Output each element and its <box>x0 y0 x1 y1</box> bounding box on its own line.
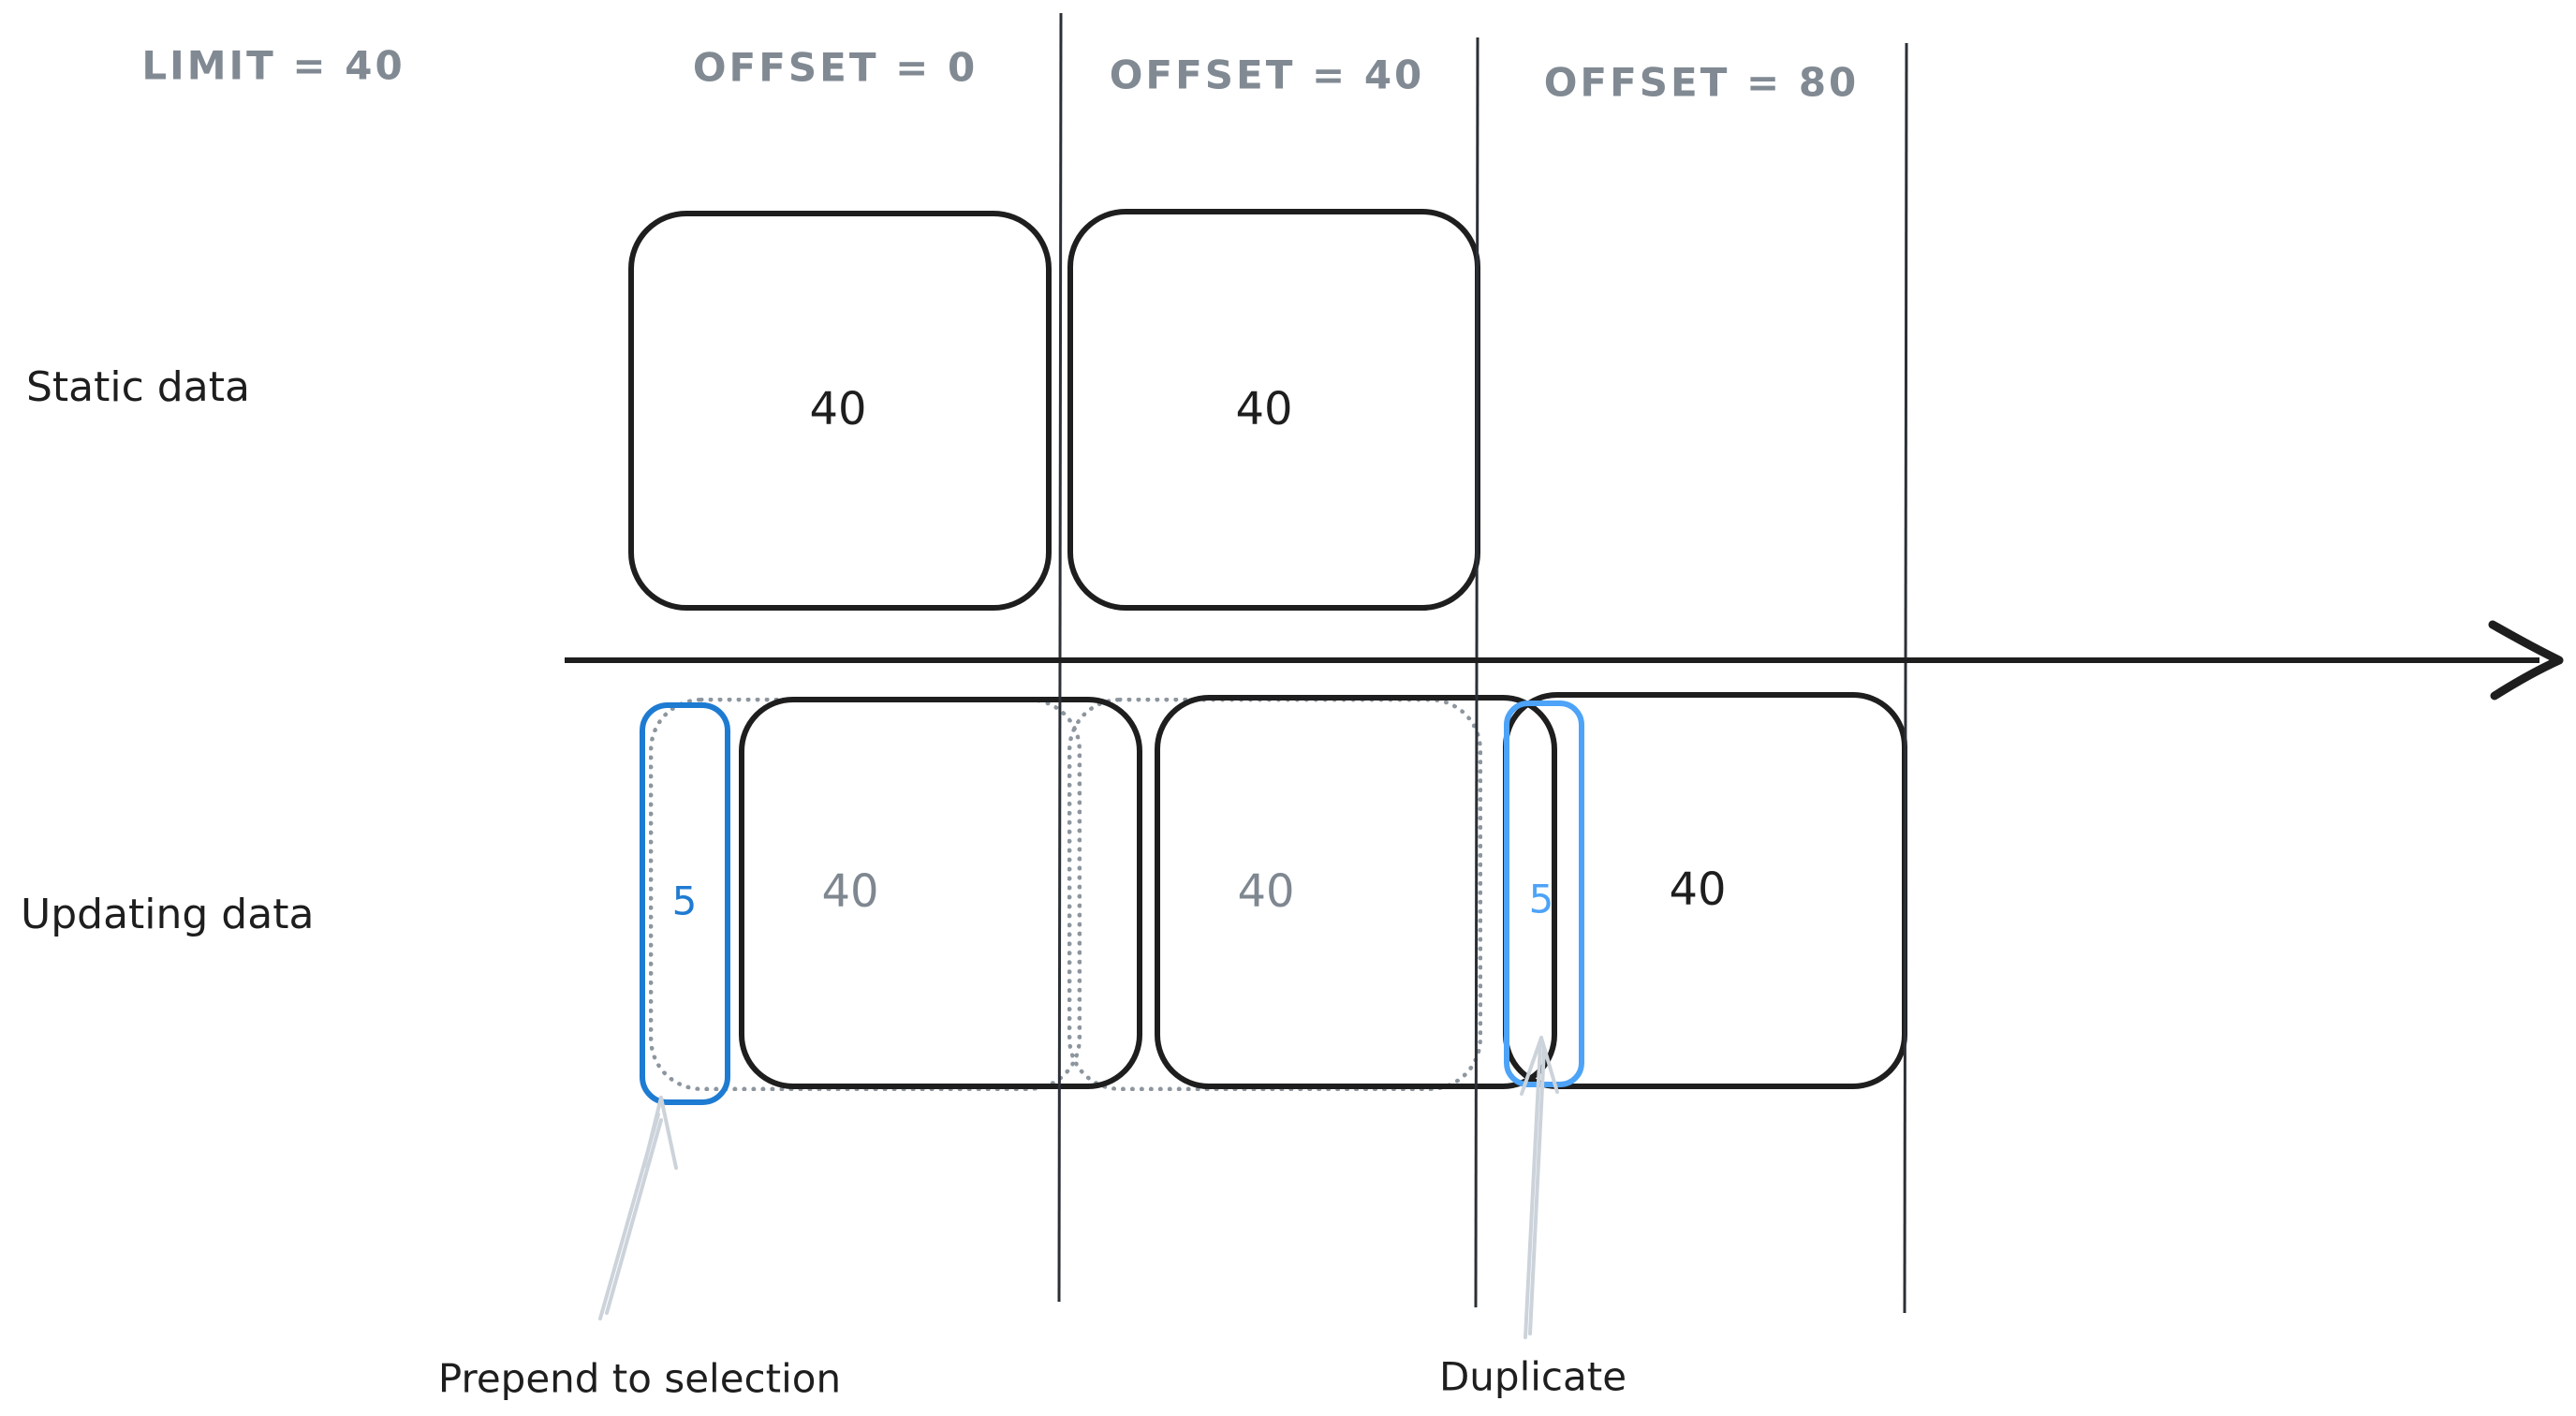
static-data-row-label: Static data <box>26 363 250 411</box>
limit-offset-pagination-diagram: LIMIT = 40 OFFSET = 0 OFFSET = 40 OFFSET… <box>0 0 2576 1416</box>
updating-page-box-3-count: 40 <box>1669 863 1726 916</box>
static-page-box-2-count: 40 <box>1235 383 1292 435</box>
offset-40-header-label: OFFSET = 40 <box>1110 52 1425 98</box>
offset-divider-line-1 <box>1059 13 1061 1302</box>
offset-80-header-label: OFFSET = 80 <box>1544 60 1860 106</box>
offset-0-header-label: OFFSET = 0 <box>693 45 978 91</box>
prepended-items-count: 5 <box>672 878 698 924</box>
duplicate-label: Duplicate <box>1439 1354 1627 1400</box>
static-page-box-1-count: 40 <box>809 383 866 435</box>
limit-header-label: LIMIT = 40 <box>141 43 405 89</box>
duplicate-items-count: 5 <box>1529 877 1554 922</box>
prepend-to-selection-label: Prepend to selection <box>438 1356 841 1402</box>
updating-data-row-label: Updating data <box>21 891 314 938</box>
updating-page-box-1-count: 40 <box>821 865 878 918</box>
offset-divider-line-2 <box>1476 37 1478 1307</box>
updating-page-box-2 <box>1155 695 1557 1089</box>
offset-divider-line-3 <box>1905 43 1906 1313</box>
timeline-arrowhead-icon <box>2493 625 2559 696</box>
updating-page-box-2-count: 40 <box>1237 865 1294 918</box>
updating-page-box-1 <box>739 697 1142 1089</box>
prepend-annotation-arrow-icon <box>600 1098 676 1319</box>
